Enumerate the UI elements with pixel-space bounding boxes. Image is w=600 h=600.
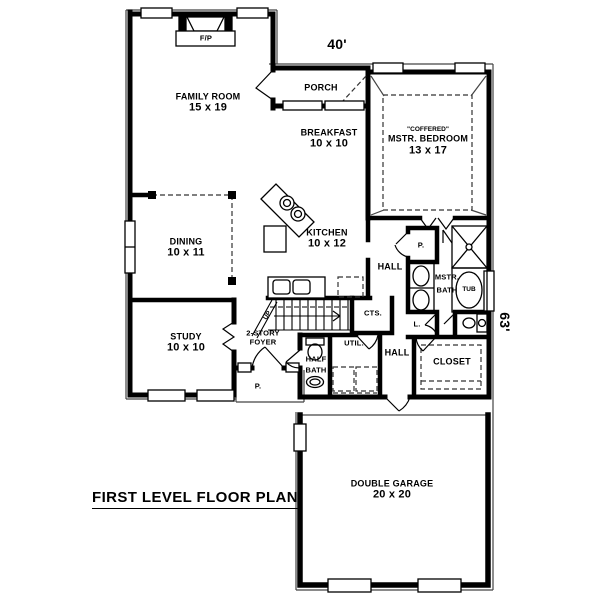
column	[148, 191, 156, 199]
column	[228, 191, 236, 199]
family-room-size: 15 x 19	[189, 103, 227, 114]
study-window	[197, 390, 234, 401]
kitchen-sink	[293, 280, 310, 294]
shower-door	[443, 230, 452, 243]
master-bedroom-window	[373, 63, 403, 73]
hall-upper-label: HALL	[378, 263, 403, 272]
garage-side-door	[294, 424, 306, 451]
porch-label: PORCH	[304, 84, 338, 93]
bath-window	[484, 271, 494, 311]
stairs-closet-label: CTS.	[364, 309, 382, 317]
toilet	[463, 318, 475, 328]
dining-label: DINING	[170, 238, 203, 247]
porch-window	[283, 101, 322, 110]
pantry-label: P.	[418, 241, 425, 249]
refrigerator	[338, 277, 363, 297]
breakfast-label: BREAKFAST	[301, 129, 358, 138]
dryer	[356, 367, 377, 391]
linen-label: L.	[413, 320, 420, 328]
family-room-opening	[256, 70, 273, 100]
garage-entry-door	[385, 397, 410, 411]
utility-label: UTIL.	[344, 339, 364, 347]
floor-plan-drawing	[0, 0, 600, 600]
master-bath-label-line1: MSTR.	[435, 273, 459, 281]
garage-label: DOUBLE GARAGE	[351, 480, 434, 489]
study-size: 10 x 10	[167, 343, 205, 354]
porch-roof-line	[342, 76, 366, 102]
closet-shelving	[421, 345, 481, 389]
master-bath-label-line2: BATH	[436, 286, 457, 294]
family-room-window	[141, 8, 172, 18]
sink	[307, 377, 324, 388]
half-bath-label-line1: HALF	[306, 355, 327, 363]
garage-door-opening	[328, 579, 371, 592]
breakfast-size: 10 x 10	[310, 139, 348, 150]
garage-door-opening	[418, 579, 461, 592]
porch-window	[325, 101, 364, 110]
family-room-window	[237, 8, 268, 18]
pantry-door	[395, 232, 408, 257]
tub-label: TUB	[462, 287, 475, 294]
plan-title: FIRST LEVEL FLOOR PLAN	[92, 489, 298, 509]
master-bedroom-ceiling-label: "COFFERED"	[407, 127, 449, 134]
master-bedroom-window	[455, 63, 485, 73]
family-room-label: FAMILY ROOM	[176, 93, 241, 102]
dining-size: 10 x 11	[167, 248, 205, 259]
kitchen-label: KITCHEN	[306, 229, 347, 238]
study-window	[148, 390, 185, 401]
entry-stoop-label: P.	[255, 382, 262, 390]
master-bedroom-size: 13 x 17	[409, 146, 447, 157]
study-label: STUDY	[170, 333, 202, 342]
entry-sidelight	[238, 363, 251, 372]
depth-dimension: 63'	[498, 312, 512, 332]
column	[228, 277, 236, 285]
foyer-label-line2: FOYER	[250, 338, 277, 346]
front-door	[252, 347, 284, 368]
foyer-label-line1: 2-STORY	[246, 329, 280, 337]
kitchen-cabinet	[264, 226, 286, 252]
study-french-doors	[223, 322, 234, 352]
hall-lower-label: HALL	[385, 349, 410, 358]
toilet	[413, 290, 429, 310]
kitchen-sink	[273, 280, 290, 294]
floor-plan: FAMILY ROOM 15 x 19 PORCH "COFFERED" MST…	[0, 0, 600, 600]
kitchen-size: 10 x 12	[308, 239, 346, 250]
half-bath-label-line2: BATH	[305, 366, 326, 374]
master-bedroom-label: MSTR. BEDROOM	[388, 135, 468, 144]
garage-size: 20 x 20	[373, 490, 411, 501]
toilet	[413, 266, 429, 286]
closet-label: CLOSET	[433, 358, 471, 367]
washer	[333, 367, 354, 391]
width-dimension: 40'	[327, 37, 347, 51]
fireplace-label: F/P	[200, 34, 212, 42]
